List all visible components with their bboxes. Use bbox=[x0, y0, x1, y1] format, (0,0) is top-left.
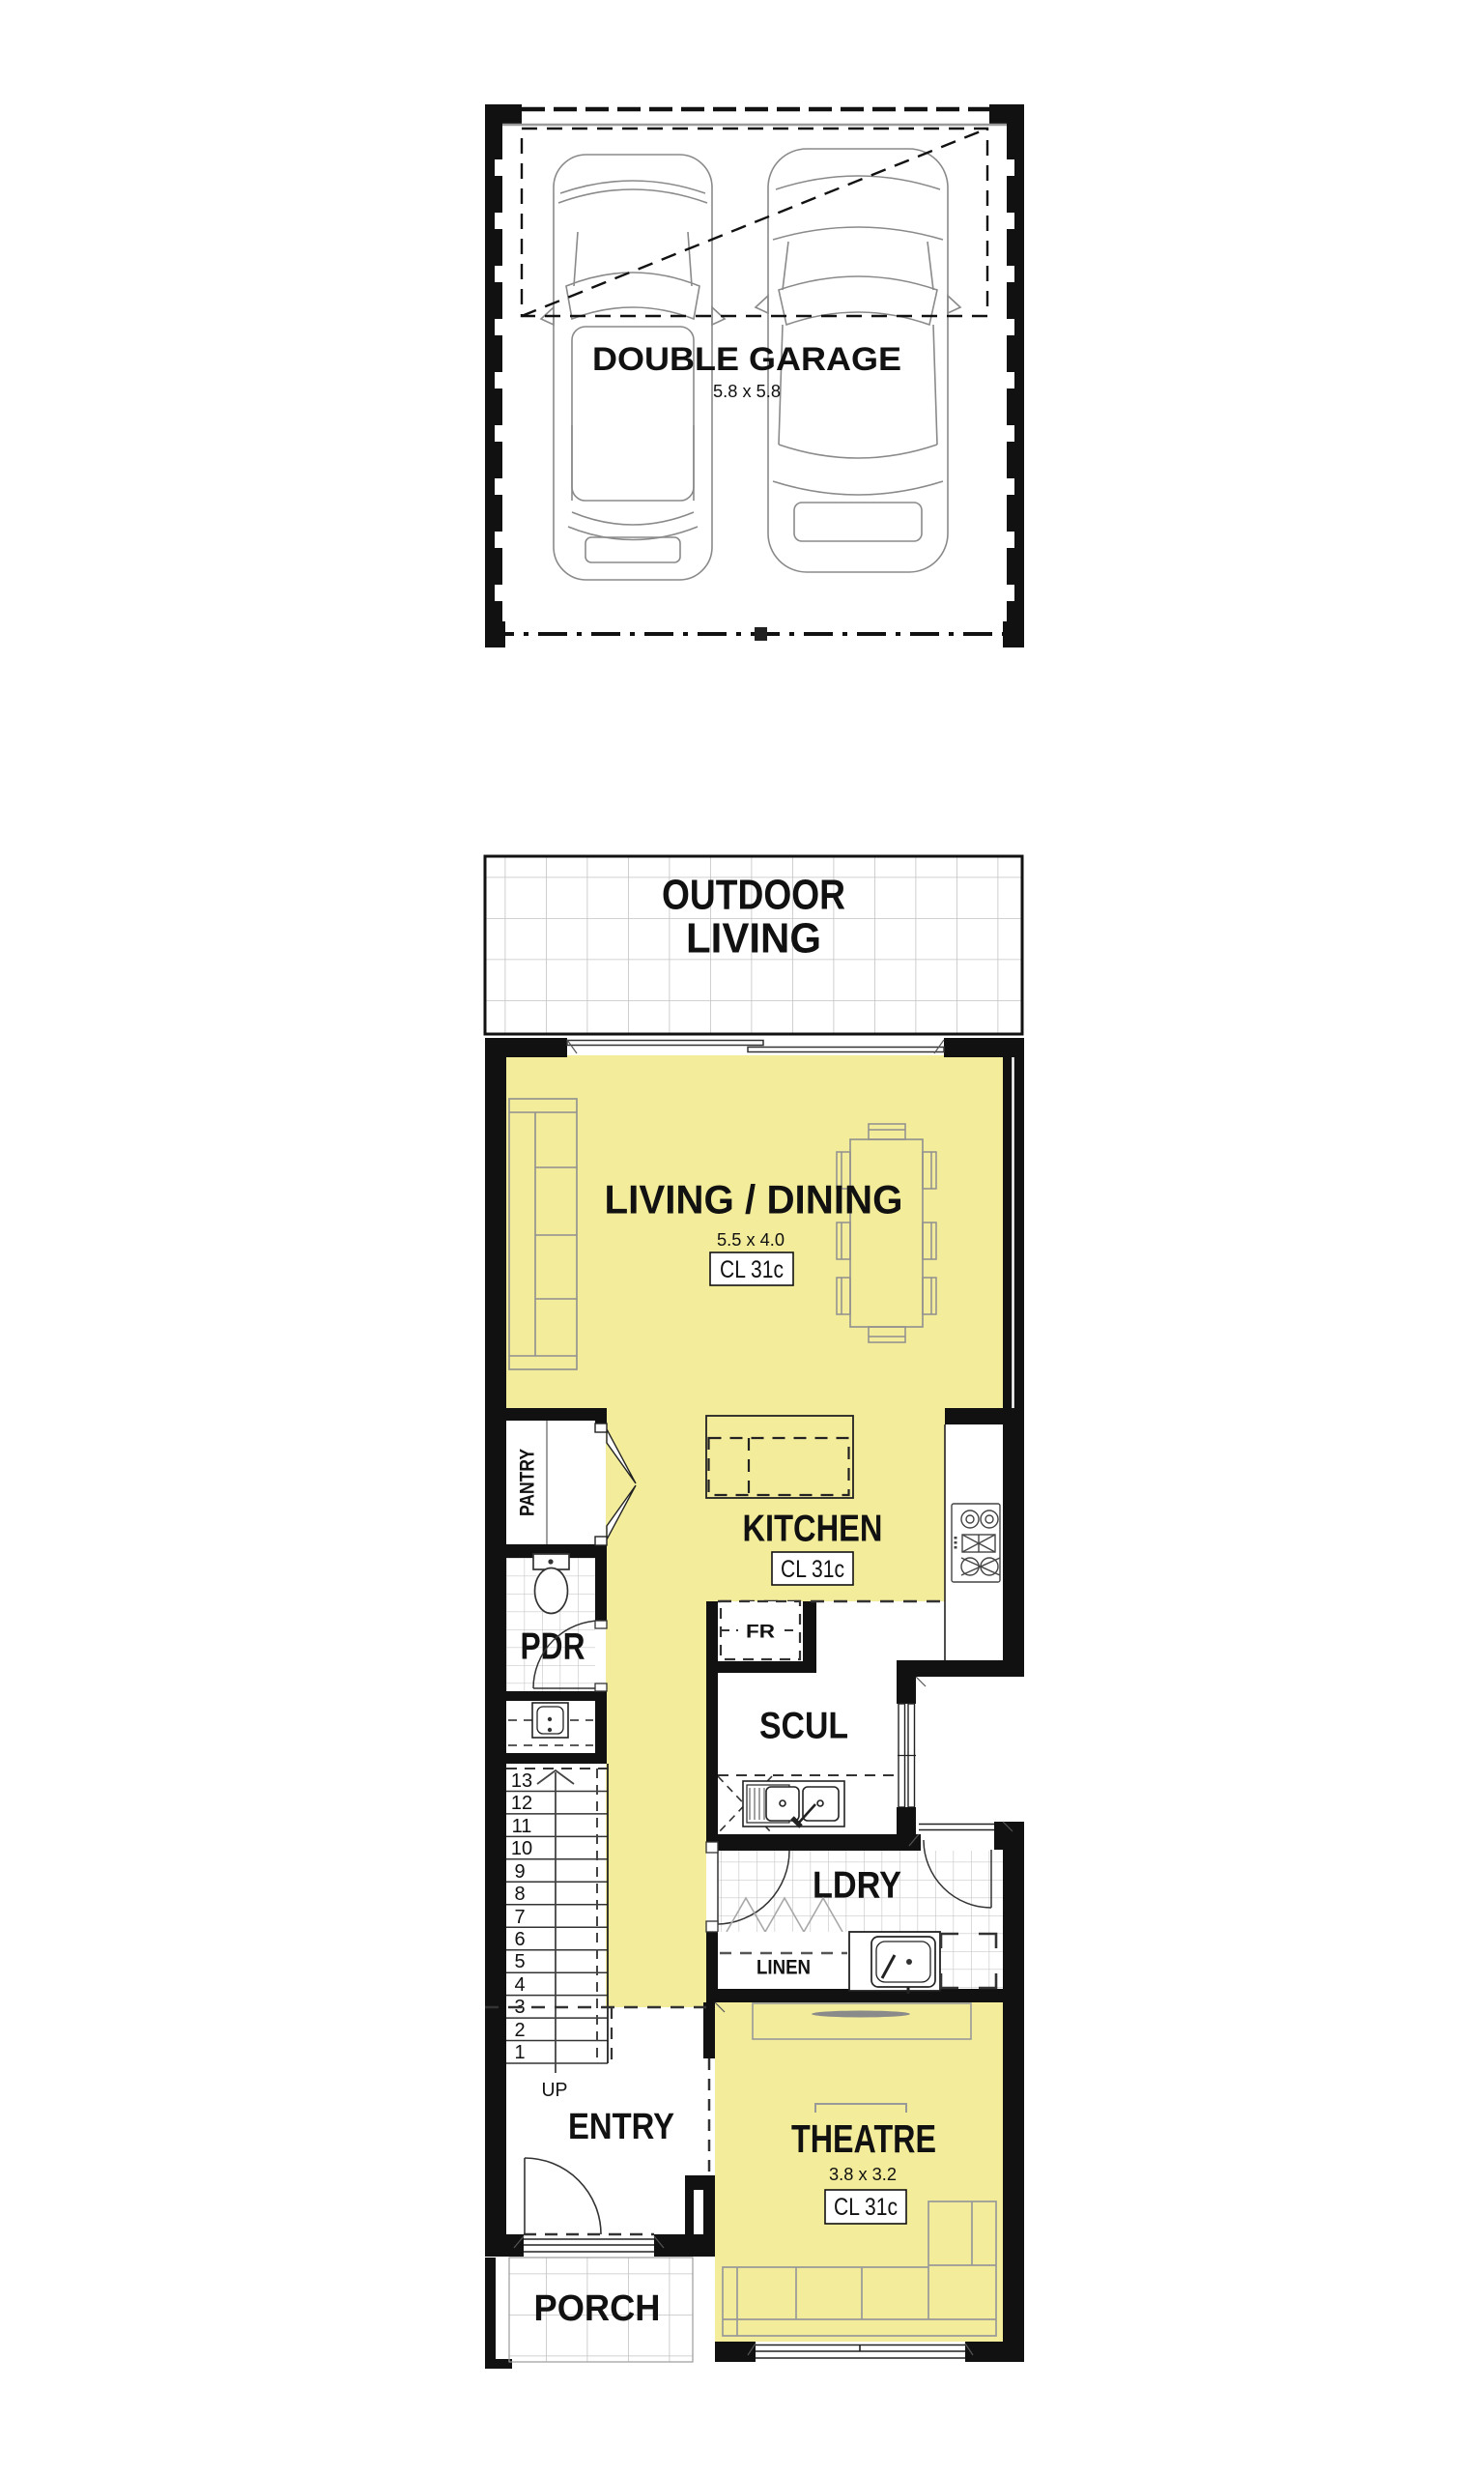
svg-text:THEATRE: THEATRE bbox=[791, 2116, 936, 2161]
svg-text:CL 31c: CL 31c bbox=[834, 2194, 898, 2221]
svg-text:13: 13 bbox=[511, 1770, 532, 1792]
svg-text:5.8 x 5.8: 5.8 x 5.8 bbox=[713, 382, 781, 401]
svg-text:FR: FR bbox=[746, 1623, 775, 1643]
svg-text:2: 2 bbox=[514, 2020, 525, 2041]
svg-text:PDR: PDR bbox=[521, 1626, 585, 1668]
svg-text:1: 1 bbox=[514, 2042, 525, 2063]
svg-text:4: 4 bbox=[514, 1974, 525, 1996]
svg-text:LIVING: LIVING bbox=[686, 915, 821, 963]
svg-text:12: 12 bbox=[511, 1793, 532, 1814]
svg-text:CL 31c: CL 31c bbox=[781, 1556, 844, 1583]
svg-text:10: 10 bbox=[511, 1838, 532, 1859]
svg-text:KITCHEN: KITCHEN bbox=[743, 1509, 883, 1550]
svg-text:9: 9 bbox=[514, 1861, 525, 1883]
svg-text:OUTDOOR: OUTDOOR bbox=[662, 872, 845, 919]
svg-text:ENTRY: ENTRY bbox=[568, 2107, 674, 2147]
svg-text:6: 6 bbox=[514, 1929, 525, 1950]
svg-text:5: 5 bbox=[514, 1951, 525, 1972]
svg-text:PANTRY: PANTRY bbox=[517, 1449, 539, 1516]
svg-text:PORCH: PORCH bbox=[534, 2288, 661, 2329]
svg-text:5.5 x 4.0: 5.5 x 4.0 bbox=[717, 1230, 785, 1250]
svg-text:LINEN: LINEN bbox=[756, 1957, 811, 1979]
svg-text:CL 31c: CL 31c bbox=[720, 1256, 784, 1283]
svg-text:SCUL: SCUL bbox=[759, 1706, 848, 1747]
svg-text:UP: UP bbox=[542, 2080, 568, 2101]
svg-text:8: 8 bbox=[514, 1884, 525, 1905]
svg-text:LIVING / DINING: LIVING / DINING bbox=[605, 1177, 903, 1223]
svg-text:3.8 x 3.2: 3.8 x 3.2 bbox=[829, 2165, 897, 2184]
svg-text:DOUBLE GARAGE: DOUBLE GARAGE bbox=[592, 341, 901, 378]
svg-text:11: 11 bbox=[512, 1816, 532, 1837]
svg-text:LDRY: LDRY bbox=[813, 1865, 901, 1907]
svg-text:7: 7 bbox=[514, 1907, 525, 1928]
